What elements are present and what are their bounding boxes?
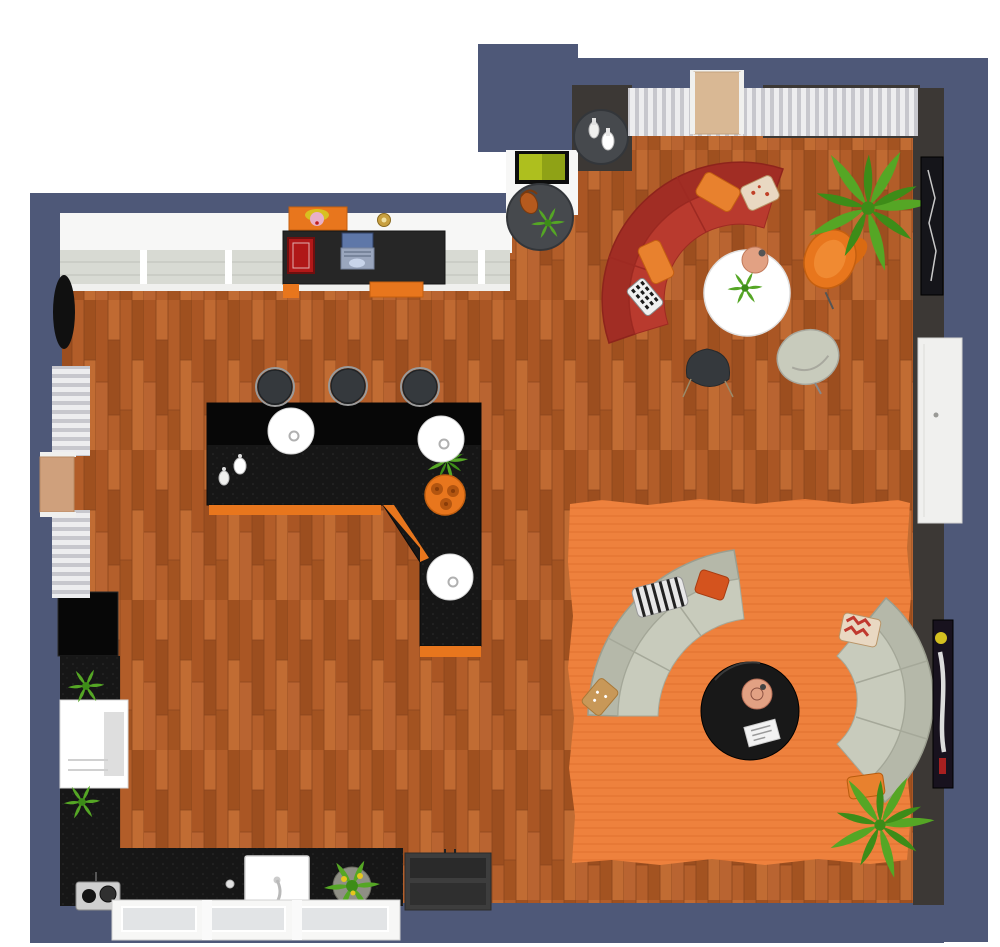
pendant-lamp-3[interactable]	[427, 554, 473, 600]
floor-plan-canvas	[0, 0, 1000, 947]
bar-stool-1[interactable]	[256, 368, 294, 406]
vase-console-table[interactable]	[574, 110, 628, 164]
peach-table-lamp	[742, 247, 768, 273]
floor-plan-stage	[0, 0, 1000, 947]
red-books[interactable]	[288, 238, 314, 273]
entry-door-top[interactable]	[690, 70, 744, 134]
wall-lamp[interactable]	[378, 214, 391, 227]
pendant-lamp-2[interactable]	[418, 416, 464, 462]
range-oven-unit[interactable]	[405, 849, 491, 910]
left-curtain-lower[interactable]	[52, 510, 90, 598]
media-side-table[interactable]	[507, 184, 573, 250]
tall-black-cabinet[interactable]	[58, 592, 118, 656]
wall-poster-dark[interactable]	[921, 157, 943, 295]
oval-wall-mirror[interactable]	[53, 275, 75, 349]
wall-poster-color[interactable]	[933, 620, 953, 788]
bar-stool-2[interactable]	[329, 367, 367, 405]
desk-drawer	[370, 282, 423, 297]
round-black-coffee-table[interactable]	[701, 662, 799, 760]
sink-knob	[226, 880, 234, 888]
desk-leg	[283, 284, 299, 298]
peach-table-lamp-2	[742, 679, 772, 709]
bottom-windows[interactable]	[112, 900, 400, 940]
pendant-lamp-1[interactable]	[268, 408, 314, 454]
wall-top-left	[42, 193, 512, 215]
pop-art-picture[interactable]	[289, 207, 347, 230]
door-handle	[934, 413, 939, 418]
white-kitchen-appliance[interactable]	[60, 700, 128, 788]
left-curtain-upper[interactable]	[52, 366, 90, 456]
flat-screen-tv[interactable]	[515, 151, 569, 188]
drinks-tray[interactable]	[425, 475, 465, 515]
laptop[interactable]	[341, 233, 374, 269]
top-curtains[interactable]	[628, 88, 918, 136]
open-white-door-right[interactable]	[918, 338, 962, 523]
bar-stool-3[interactable]	[401, 368, 439, 406]
side-door-left[interactable]	[40, 452, 76, 517]
